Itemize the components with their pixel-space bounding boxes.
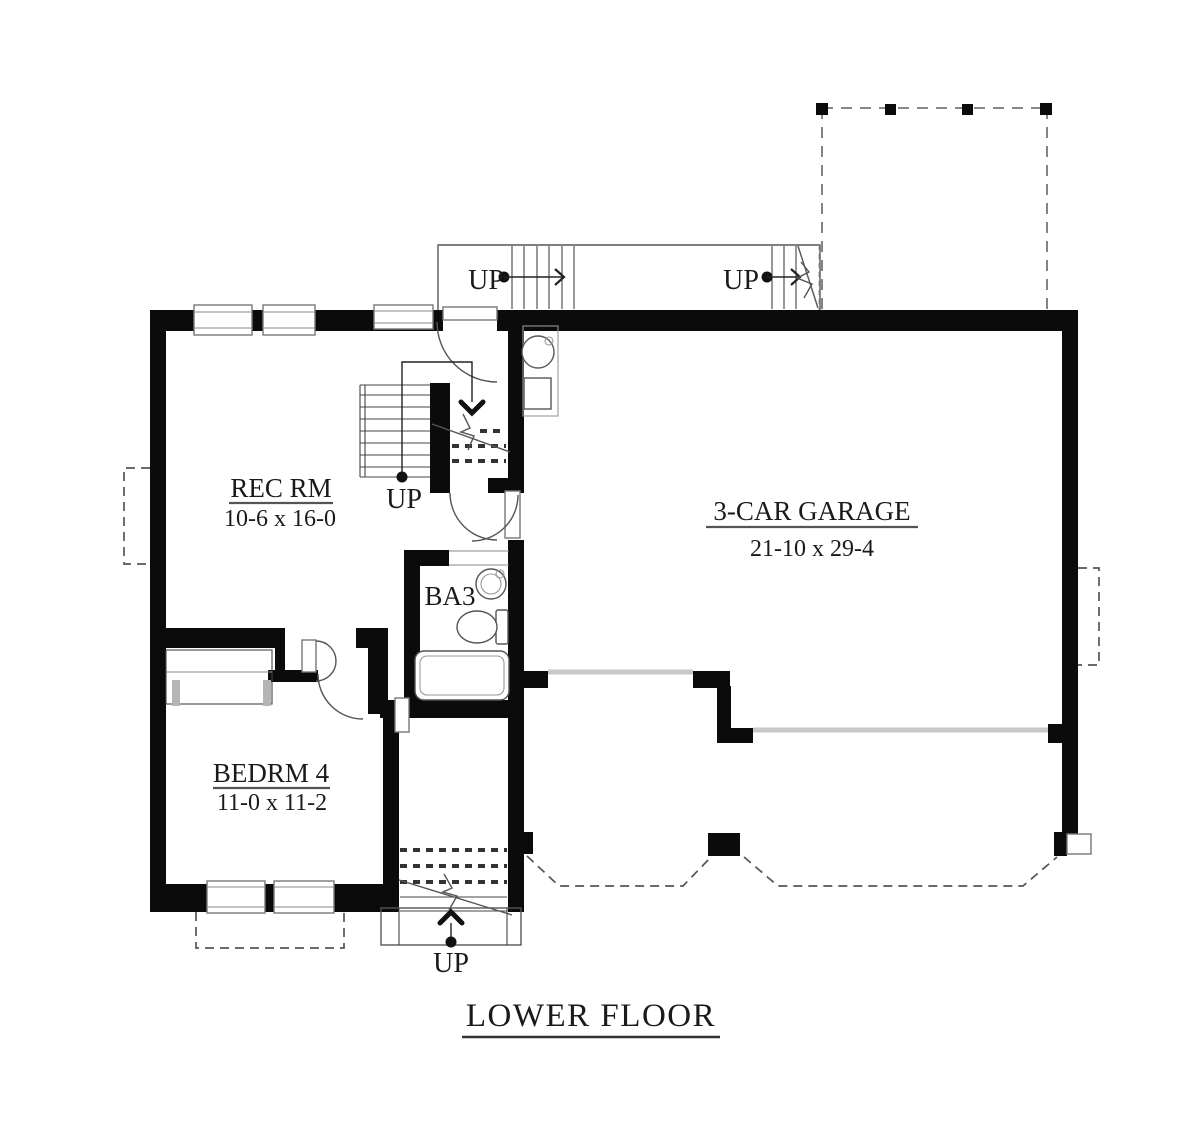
garage-fixtures [522, 326, 558, 416]
landing-window [374, 305, 433, 329]
rec-room-label: REC RM [230, 473, 331, 503]
stair-start-dot [446, 937, 457, 948]
floor-plan-canvas: REC RM 10-6 x 16-0 BEDRM 4 11-0 x 11-2 B… [0, 0, 1200, 1127]
bay-post-middle [708, 833, 740, 856]
labels: REC RM 10-6 x 16-0 BEDRM 4 11-0 x 11-2 B… [213, 265, 918, 1037]
bay-post-west [513, 832, 533, 854]
deck-outline-dashed [816, 103, 1052, 310]
sink-icon [476, 569, 506, 599]
deck-post [885, 104, 896, 115]
window-well-south [196, 912, 344, 948]
rec-room-dims: 10-6 x 16-0 [224, 506, 336, 532]
garage-west-wall-lower [508, 540, 524, 912]
entry-stair-west-wall [383, 706, 399, 912]
closet-door-jamb [172, 680, 180, 706]
garage-front-stub-east [1048, 724, 1064, 743]
window-wells [124, 468, 1099, 948]
break-zigzag [797, 262, 812, 298]
break-zigzag [443, 874, 457, 910]
windows [194, 305, 1091, 913]
bath-door-threshold [449, 551, 509, 565]
toilet-icon [457, 610, 508, 644]
bedroom-closet [166, 650, 272, 706]
walls [150, 310, 1078, 912]
bedroom-window [274, 881, 334, 913]
garage-front-step-b [717, 686, 731, 730]
window-well-west [124, 468, 150, 564]
stair-treads-upper-flight-dashed [452, 431, 506, 461]
garage-dims: 21-10 x 29-4 [750, 536, 874, 562]
landing-entry-door [437, 307, 497, 382]
bath-label: BA3 [424, 581, 475, 611]
closet-outline [166, 650, 272, 704]
garage-corner-window [1067, 834, 1091, 854]
up-label-entry-stairs: UP [433, 948, 469, 979]
up-label-corridor-east: UP [723, 265, 759, 296]
west-wall [150, 310, 166, 912]
bedroom-window [207, 881, 265, 913]
stair-start-dot [397, 472, 408, 483]
garage-west-wall-upper [508, 322, 524, 478]
garage-label: 3-CAR GARAGE [713, 496, 910, 526]
east-wall-garage [1062, 310, 1078, 834]
utility-door [395, 698, 409, 732]
entry-stairs [381, 850, 521, 948]
bedroom-dims: 11-0 x 11-2 [217, 790, 327, 816]
deck-post [962, 104, 973, 115]
stair-treads-down-flight [360, 385, 430, 477]
garage-hall-door [450, 491, 520, 541]
driveway-bay-dashed [527, 856, 1057, 886]
up-label-corridor-west: UP [468, 265, 504, 296]
rec-bedroom-wall [166, 628, 285, 648]
down-arrow-icon [461, 402, 483, 413]
up-label-main-stairs: UP [386, 484, 422, 515]
garage-front-step-a [693, 671, 730, 688]
closet-door-jamb [263, 680, 271, 706]
entry-treads-dashed [400, 850, 507, 882]
bedroom-label: BEDRM 4 [213, 758, 330, 788]
deck-post [1040, 103, 1052, 115]
hall-wall-stub [356, 628, 388, 648]
floor-plan-sheet: REC RM 10-6 x 16-0 BEDRM 4 11-0 x 11-2 B… [0, 0, 1200, 1127]
up-arrow-icon [440, 912, 462, 923]
bathtub-icon [415, 651, 509, 700]
stair-middle-wall [430, 383, 450, 493]
door-jamb [275, 637, 285, 675]
plan-title: LOWER FLOOR [466, 998, 716, 1034]
deck-post [816, 103, 828, 115]
utility-box-icon [524, 378, 551, 409]
east-wall-cap [1054, 832, 1067, 856]
window-well-east [1078, 568, 1099, 665]
garage-front-stub-west [517, 671, 548, 688]
rec-room-window [263, 305, 315, 335]
rec-room-window [194, 305, 252, 335]
garage-doors [548, 672, 1048, 730]
utility-sink-icon [522, 336, 554, 368]
garage-front-step-c [717, 728, 753, 743]
